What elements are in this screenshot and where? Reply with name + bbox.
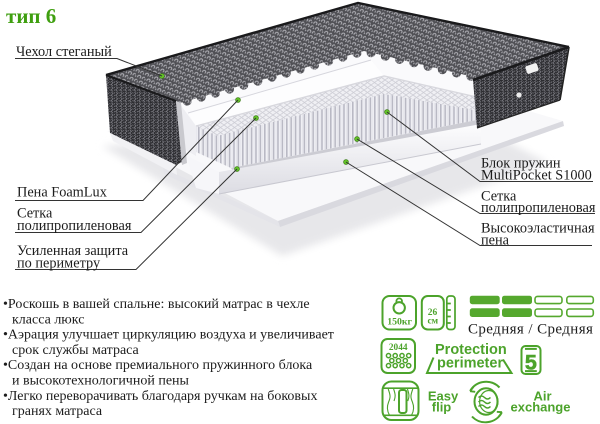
svg-text:MultiPocket S1000: MultiPocket S1000 bbox=[481, 168, 592, 184]
svg-text:5: 5 bbox=[525, 351, 537, 375]
svg-text:Средняя / Средняя: Средняя / Средняя bbox=[468, 322, 593, 338]
svg-text:полипропиленовая: полипропиленовая bbox=[481, 200, 596, 216]
svg-text:150кг: 150кг bbox=[387, 317, 412, 328]
svg-text:гранях матраса: гранях матраса bbox=[12, 404, 103, 419]
svg-text:по периметру: по периметру bbox=[17, 256, 101, 272]
svg-text:полипропиленовая: полипропиленовая bbox=[17, 218, 132, 234]
svg-text:•Создан на основе премиального: •Создан на основе премиального пружинног… bbox=[3, 358, 313, 373]
svg-text:Пена FoamLux: Пена FoamLux bbox=[17, 185, 107, 201]
svg-text:и высокотехнологичной пены: и высокотехнологичной пены bbox=[12, 374, 190, 389]
svg-text:пена: пена bbox=[481, 233, 510, 249]
svg-text:см: см bbox=[427, 317, 438, 327]
svg-text:2044: 2044 bbox=[389, 343, 408, 353]
svg-text:flip: flip bbox=[432, 400, 452, 415]
svg-text:класса люкс: класса люкс bbox=[12, 312, 84, 327]
svg-text:•Роскошь в вашей спальне: высо: •Роскошь в вашей спальне: высокий матрас… bbox=[3, 297, 310, 312]
svg-text:тип 6: тип 6 bbox=[6, 4, 56, 28]
svg-text:perimeter: perimeter bbox=[437, 356, 503, 372]
svg-text:Чехол стеганый: Чехол стеганый bbox=[16, 44, 112, 60]
svg-text:•Аэрация улучшает циркуляцию в: •Аэрация улучшает циркуляцию воздуха и у… bbox=[3, 328, 334, 343]
svg-text:срок службы матраса: срок службы матраса bbox=[12, 343, 140, 358]
svg-text:•Легко переворачивать благодар: •Легко переворачивать благодаря ручкам н… bbox=[3, 389, 317, 404]
svg-text:exchange: exchange bbox=[511, 400, 571, 415]
